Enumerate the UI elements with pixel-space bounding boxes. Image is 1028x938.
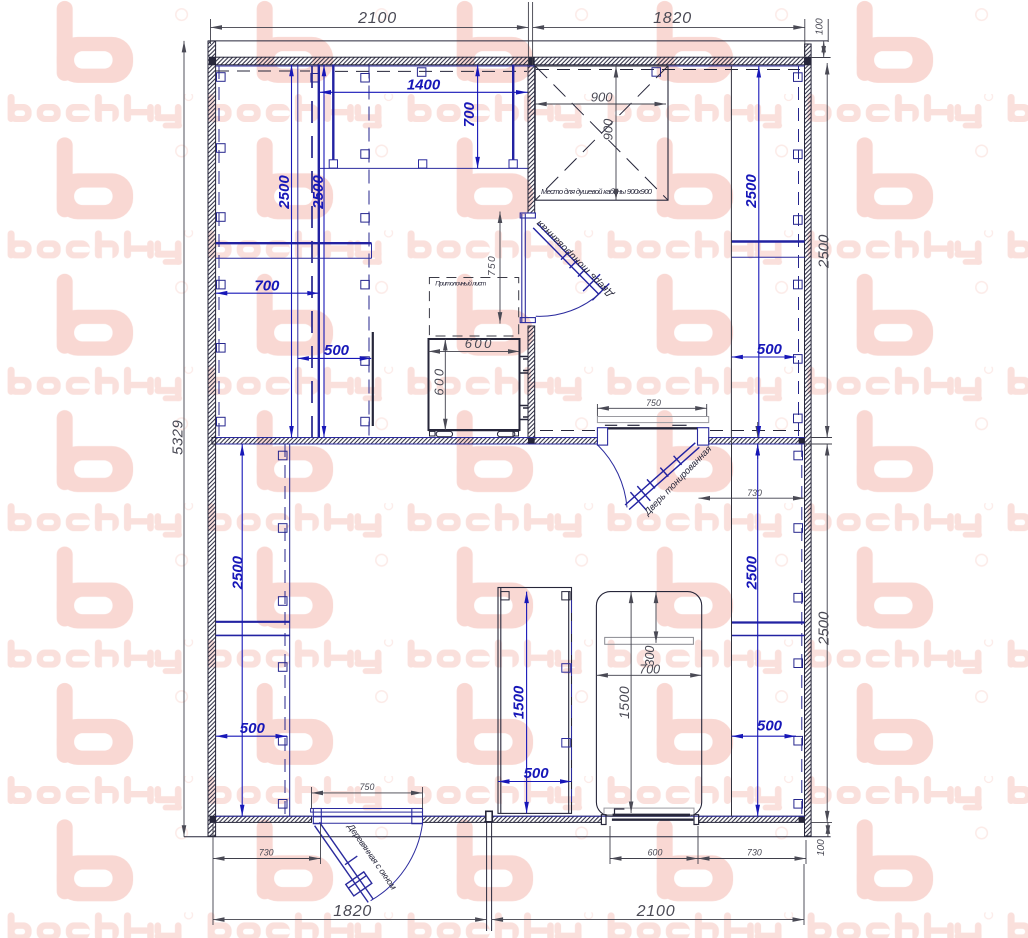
svg-text:500: 500 — [240, 720, 266, 737]
svg-text:5329: 5329 — [170, 419, 187, 455]
svg-text:700: 700 — [639, 663, 660, 677]
svg-text:700: 700 — [254, 278, 280, 295]
svg-text:2500: 2500 — [744, 555, 761, 590]
svg-text:100: 100 — [816, 839, 827, 856]
svg-text:Притолочный лист: Притолочный лист — [435, 280, 487, 288]
svg-text:1500: 1500 — [511, 685, 528, 719]
svg-text:730: 730 — [747, 488, 762, 498]
svg-text:2500: 2500 — [743, 174, 760, 209]
svg-text:2500: 2500 — [230, 555, 247, 590]
svg-text:500: 500 — [324, 342, 350, 359]
svg-text:1400: 1400 — [407, 77, 441, 94]
svg-text:600: 600 — [465, 336, 494, 351]
svg-text:1500: 1500 — [616, 686, 632, 719]
svg-text:600: 600 — [432, 366, 447, 395]
svg-text:750: 750 — [646, 398, 661, 408]
svg-text:750: 750 — [360, 782, 375, 792]
svg-text:2500: 2500 — [816, 611, 833, 646]
svg-text:1820: 1820 — [653, 10, 692, 27]
svg-text:500: 500 — [757, 718, 783, 735]
svg-text:500: 500 — [757, 341, 783, 358]
svg-text:730: 730 — [259, 847, 274, 857]
svg-text:900: 900 — [601, 118, 616, 140]
svg-text:100: 100 — [815, 18, 826, 35]
svg-text:730: 730 — [747, 847, 762, 857]
svg-text:2100: 2100 — [636, 903, 676, 920]
svg-text:2500: 2500 — [310, 175, 327, 210]
svg-text:700: 700 — [461, 102, 478, 128]
svg-text:750: 750 — [487, 255, 498, 276]
svg-text:1820: 1820 — [333, 903, 372, 920]
svg-text:2500: 2500 — [816, 234, 833, 269]
svg-text:500: 500 — [524, 765, 550, 782]
svg-text:2500: 2500 — [276, 175, 293, 210]
svg-text:600: 600 — [648, 847, 663, 857]
svg-text:Место для душевой кабины 900х9: Место для душевой кабины 900х900 — [541, 187, 653, 196]
svg-text:2100: 2100 — [357, 10, 397, 27]
svg-text:900: 900 — [591, 90, 613, 105]
